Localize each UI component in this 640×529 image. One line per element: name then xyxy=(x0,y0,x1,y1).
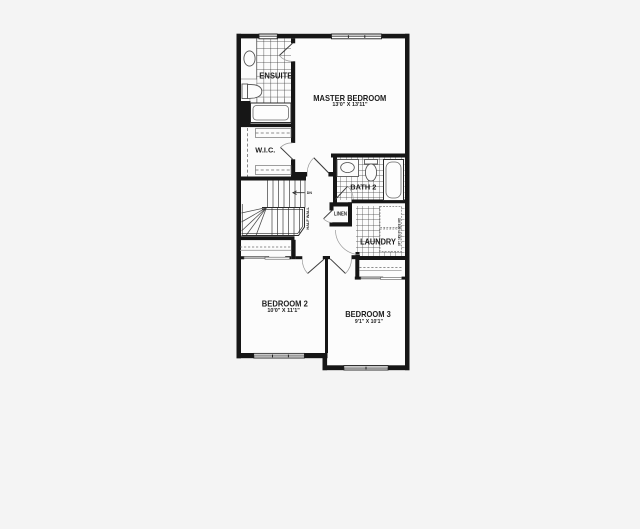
svg-text:10'0" X 11'1": 10'0" X 11'1" xyxy=(267,308,300,314)
svg-text:BEDROOM 3: BEDROOM 3 xyxy=(345,309,391,319)
svg-text:LAUNDRY: LAUNDRY xyxy=(360,237,396,246)
svg-text:HALF WALL: HALF WALL xyxy=(305,207,310,230)
svg-text:BATH 2: BATH 2 xyxy=(350,183,376,192)
svg-text:ENSUITE: ENSUITE xyxy=(259,70,292,80)
svg-text:13'0" X 13'11": 13'0" X 13'11" xyxy=(332,102,368,108)
svg-text:9'1" X 10'1": 9'1" X 10'1" xyxy=(355,319,383,325)
svg-text:OPT. SIDE BY SIDE W/D: OPT. SIDE BY SIDE W/D xyxy=(397,218,401,246)
svg-text:DN: DN xyxy=(307,191,312,195)
svg-text:LINEN: LINEN xyxy=(334,212,347,218)
svg-text:W.I.C.: W.I.C. xyxy=(255,146,275,155)
